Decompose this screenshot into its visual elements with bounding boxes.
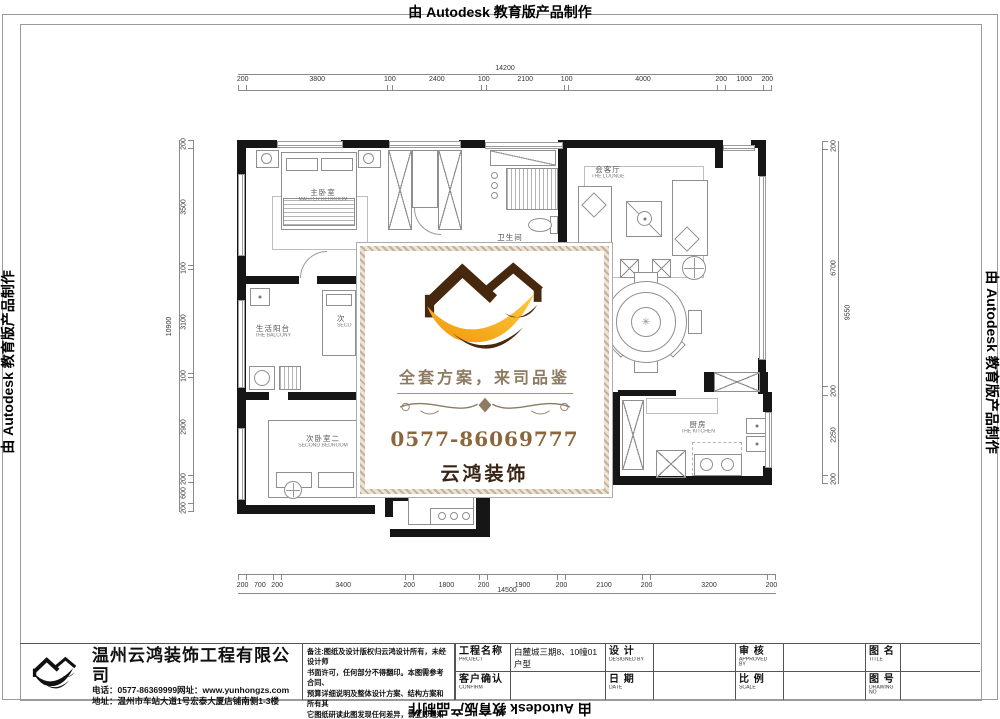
dim-segment: 200	[763, 85, 772, 90]
field-label: 设 计DESIGNED BY	[605, 644, 653, 672]
dim-segment: 200	[238, 575, 246, 580]
dim-label: 200	[831, 139, 838, 153]
brand-watermark-card: 全套方案，来司品鉴 0577-86069777 云鸿装饰	[356, 242, 613, 498]
window	[238, 428, 245, 500]
remarks-note: 备注:图纸及设计版权归云鸿设计所有，未经设计师 书面许可，任何部分不得翻印。本图…	[302, 644, 455, 700]
dim-row-bottom: 2007002003400200180020019002002100200320…	[238, 574, 776, 580]
window	[759, 176, 766, 360]
dim-segment: 6700	[823, 149, 828, 386]
company-address: 地址：温州市车站大道1号宏泰大厦店铺南侧1-3楼	[92, 696, 300, 707]
wall	[758, 142, 766, 176]
ornament-flourish-icon	[392, 395, 578, 424]
wardrobe-shelf	[412, 150, 438, 208]
dim-label: 100	[181, 261, 188, 275]
field-label: 日 期DATE	[605, 672, 653, 700]
window	[723, 145, 755, 151]
step-stone	[462, 512, 470, 520]
dim-label: 200	[831, 473, 838, 487]
dim-segment: 1800	[413, 575, 479, 580]
dim-line	[238, 74, 772, 75]
dim-label: 200	[181, 501, 188, 515]
dim-label: 2900	[181, 418, 188, 436]
card-slogan: 全套方案，来司品鉴	[399, 364, 570, 388]
wall	[704, 372, 714, 392]
field-label: 图 号DRAWING NO	[865, 672, 900, 700]
window	[238, 174, 245, 256]
field-value	[900, 672, 980, 700]
dim-segment: 200	[642, 575, 650, 580]
watermark-top: 由 Autodesk 教育版产品制作	[300, 2, 700, 22]
card-phone: 0577-86069777	[390, 427, 578, 451]
wall	[763, 392, 772, 412]
dim-label: 200	[831, 384, 838, 398]
dim-segment: 2100	[486, 85, 564, 90]
wardrobe	[388, 150, 412, 230]
toilet	[528, 218, 552, 232]
company-phone: 电话：0577-86369999网址：www.yunhongzs.com	[92, 685, 300, 696]
ceiling-fan	[284, 481, 302, 499]
dim-line	[838, 141, 839, 484]
tall-cabinet	[622, 400, 644, 470]
dim-label: 100	[383, 76, 397, 83]
field-value	[653, 644, 735, 672]
dim-row-top: 20038001002400100210010040002001000200	[238, 85, 772, 91]
dim-segment: 200	[238, 85, 246, 90]
dim-label: 4000	[634, 76, 652, 83]
dim-segment: 200	[405, 575, 413, 580]
dim-label: 200	[760, 76, 774, 83]
wall	[459, 140, 485, 148]
shower	[506, 168, 558, 210]
field-value	[900, 644, 980, 672]
field-value	[510, 672, 605, 700]
room-label-bathroom: 卫生间	[488, 233, 532, 242]
field-value: 白麓城三期8、10幢01户型	[510, 644, 605, 672]
company-logo-icon	[20, 644, 90, 700]
room-label-second-bedroom: 次卧室二SECOND BEDROOM	[290, 434, 356, 451]
dim-label: 2100	[516, 76, 534, 83]
dim-left-total: 10900	[164, 140, 176, 512]
lamp	[363, 153, 374, 164]
dim-segment: 2250	[823, 395, 828, 475]
counter	[646, 398, 718, 414]
dim-segment: 3500	[188, 148, 193, 265]
field-value	[783, 672, 865, 700]
washer-drum	[254, 370, 270, 386]
vanity	[490, 150, 556, 166]
dim-segment: 2400	[392, 85, 481, 90]
wall	[390, 529, 488, 537]
burner	[721, 458, 734, 471]
knob	[491, 192, 498, 199]
yunhong-logo-icon	[412, 251, 558, 362]
dim-col-right: 20067002002250200	[822, 141, 828, 484]
dim-label: 200	[181, 137, 188, 151]
window	[485, 142, 563, 149]
wall	[237, 392, 269, 400]
dim-segment: 200	[823, 386, 828, 394]
title-block: 温州云鸿装饰工程有限公司 电话：0577-86369999网址：www.yunh…	[20, 643, 980, 700]
laundry-sink	[279, 366, 301, 390]
wall	[558, 140, 567, 250]
dim-segment: 1000	[725, 85, 763, 90]
dim-top-total: 14200	[238, 65, 772, 72]
dim-label: 100	[560, 76, 574, 83]
dim-segment: 4000	[568, 85, 716, 90]
dim-label: 2400	[428, 76, 446, 83]
wardrobe	[438, 150, 462, 230]
watermark-bottom: 由 Autodesk 教育版产品制作	[300, 699, 700, 719]
dim-segment: 600	[188, 482, 193, 503]
dim-label: 100	[477, 76, 491, 83]
dim-segment: 200	[188, 475, 193, 483]
dim-label: 3100	[181, 313, 188, 331]
dim-label: 200	[181, 472, 188, 486]
dim-segment: 2900	[188, 377, 193, 474]
dim-label: 600	[181, 487, 188, 501]
step-stone	[438, 512, 446, 520]
dim-segment: 3800	[246, 85, 387, 90]
window	[765, 412, 772, 468]
dim-col-left: 200350010031001002900200600200	[188, 140, 194, 512]
burner	[700, 458, 713, 471]
dim-right-total: 9550	[842, 141, 854, 484]
card-divider-line	[397, 393, 573, 394]
dim-segment: 1900	[487, 575, 557, 580]
dim-label: 100	[181, 369, 188, 383]
cad-floorplan-page: 由 Autodesk 教育版产品制作 由 Autodesk 教育版产品制作 由 …	[0, 0, 1000, 719]
side-table	[682, 256, 706, 280]
knob	[491, 172, 498, 179]
room-label-balcony: 生活阳台THE BALCONY	[244, 324, 302, 341]
wall	[618, 390, 676, 396]
window	[277, 141, 343, 148]
dim-label: 3500	[181, 198, 188, 216]
step-stone	[450, 512, 458, 520]
dim-segment: 200	[767, 575, 776, 580]
dim-label: 1000	[735, 76, 753, 83]
window	[238, 300, 245, 388]
floor-drain	[250, 288, 270, 306]
dim-segment: 200	[823, 141, 828, 149]
knob	[491, 182, 498, 189]
lazy-susan: ✳	[631, 307, 661, 337]
room-label-master-bedroom: 主卧室MASTER BEDROOM	[288, 188, 358, 205]
lamp	[261, 153, 272, 164]
pillow	[318, 472, 354, 488]
room-label-lounge: 会客厅THE LOUNGE	[578, 165, 638, 182]
company-name: 温州云鸿装饰工程有限公司	[92, 646, 300, 685]
field-value	[783, 644, 865, 672]
pillow	[286, 158, 318, 171]
dim-label: 3800	[308, 76, 326, 83]
wall	[341, 140, 389, 148]
field-value	[653, 672, 735, 700]
dim-label: 2250	[831, 426, 838, 444]
dim-segment: 200	[557, 575, 565, 580]
field-label: 工程名称PROJECT	[455, 644, 510, 672]
wall	[612, 476, 772, 485]
dim-segment: 200	[188, 503, 193, 512]
wall	[715, 148, 723, 168]
dim-segment: 200	[479, 575, 487, 580]
window	[389, 141, 461, 148]
watermark-left: 由 Autodesk 教育版产品制作	[0, 162, 18, 562]
dim-segment: 2100	[565, 575, 642, 580]
dim-segment: 3200	[650, 575, 767, 580]
pillow	[326, 294, 352, 306]
field-label: 审 核APPROVED BY	[735, 644, 783, 672]
watermark-right: 由 Autodesk 教育版产品制作	[982, 162, 1000, 562]
field-label: 图 名TITLE	[865, 644, 900, 672]
pillow	[321, 158, 353, 171]
dim-segment: 200	[188, 140, 193, 148]
dining-chair	[688, 310, 702, 334]
room-label-kitchen: 厨房THE KITCHEN	[668, 420, 728, 437]
dim-segment: 200	[273, 575, 281, 580]
dim-segment: 3400	[281, 575, 405, 580]
wall	[237, 276, 299, 284]
plant	[637, 211, 652, 226]
company-info: 温州云鸿装饰工程有限公司 电话：0577-86369999网址：www.yunh…	[90, 644, 302, 700]
wall	[237, 505, 375, 514]
card-brand: 云鸿装饰	[440, 459, 528, 486]
dim-bottom-total: 14500	[238, 587, 776, 594]
title-block-fields: 工程名称PROJECT白麓城三期8、10幢01户型设 计DESIGNED BY审…	[455, 644, 980, 700]
field-label: 客户确认CONFIRM	[455, 672, 510, 700]
wall	[760, 372, 768, 392]
field-label: 比 例SCALE	[735, 672, 783, 700]
flue-column	[714, 372, 760, 392]
dim-label: 200	[714, 76, 728, 83]
dim-segment: 3100	[188, 269, 193, 373]
wall	[567, 140, 723, 148]
dim-segment: 200	[717, 85, 725, 90]
dim-segment: 700	[246, 575, 272, 580]
dim-segment: 200	[823, 475, 828, 484]
wall	[612, 392, 620, 478]
base-cabinet	[656, 450, 686, 478]
dim-label: 200	[236, 76, 250, 83]
dim-label: 6700	[831, 259, 838, 277]
